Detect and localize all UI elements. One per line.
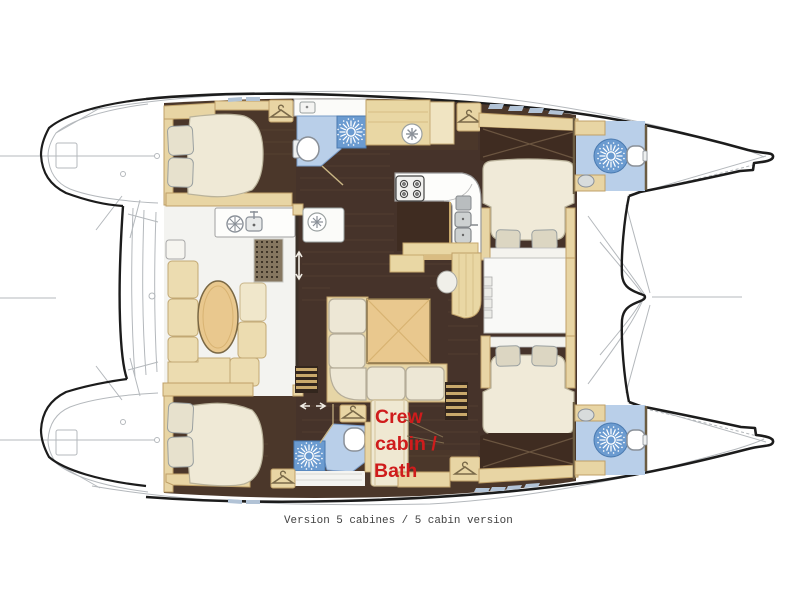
svg-text:Crew: Crew (375, 406, 424, 428)
svg-text:cabin /: cabin / (375, 433, 437, 455)
svg-text:Bath: Bath (374, 460, 417, 482)
svg-text:Version 5 cabines / 5 cabin ve: Version 5 cabines / 5 cabin version (284, 515, 513, 527)
